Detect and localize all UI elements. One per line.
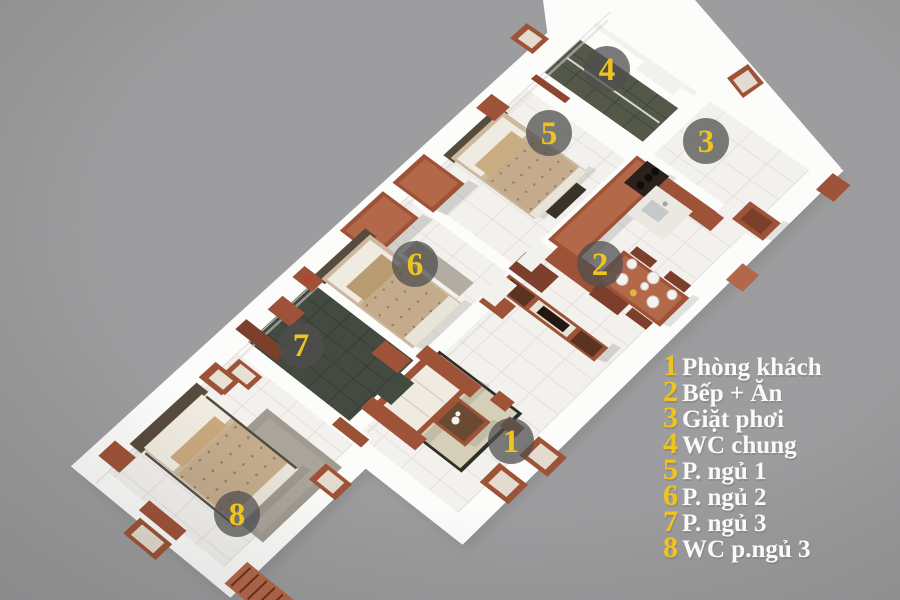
- svg-text:2: 2: [592, 247, 609, 283]
- svg-text:P. ngủ 1: P. ngủ 1: [682, 458, 767, 485]
- svg-text:7: 7: [293, 328, 310, 364]
- svg-text:P. ngủ 3: P. ngủ 3: [682, 510, 767, 537]
- svg-text:8: 8: [663, 531, 678, 564]
- svg-text:Bếp + Ăn: Bếp + Ăn: [682, 379, 782, 407]
- svg-text:1: 1: [503, 424, 520, 460]
- svg-text:WC chung: WC chung: [682, 432, 797, 459]
- svg-text:8: 8: [229, 497, 246, 533]
- svg-text:Phòng khách: Phòng khách: [682, 354, 822, 381]
- svg-text:4: 4: [599, 52, 616, 88]
- svg-text:5: 5: [541, 116, 558, 152]
- svg-text:Giặt phơi: Giặt phơi: [682, 406, 784, 433]
- svg-text:6: 6: [407, 247, 424, 283]
- svg-text:3: 3: [698, 124, 715, 160]
- svg-text:P. ngủ 2: P. ngủ 2: [682, 484, 767, 511]
- svg-text:WC p.ngủ 3: WC p.ngủ 3: [682, 536, 811, 563]
